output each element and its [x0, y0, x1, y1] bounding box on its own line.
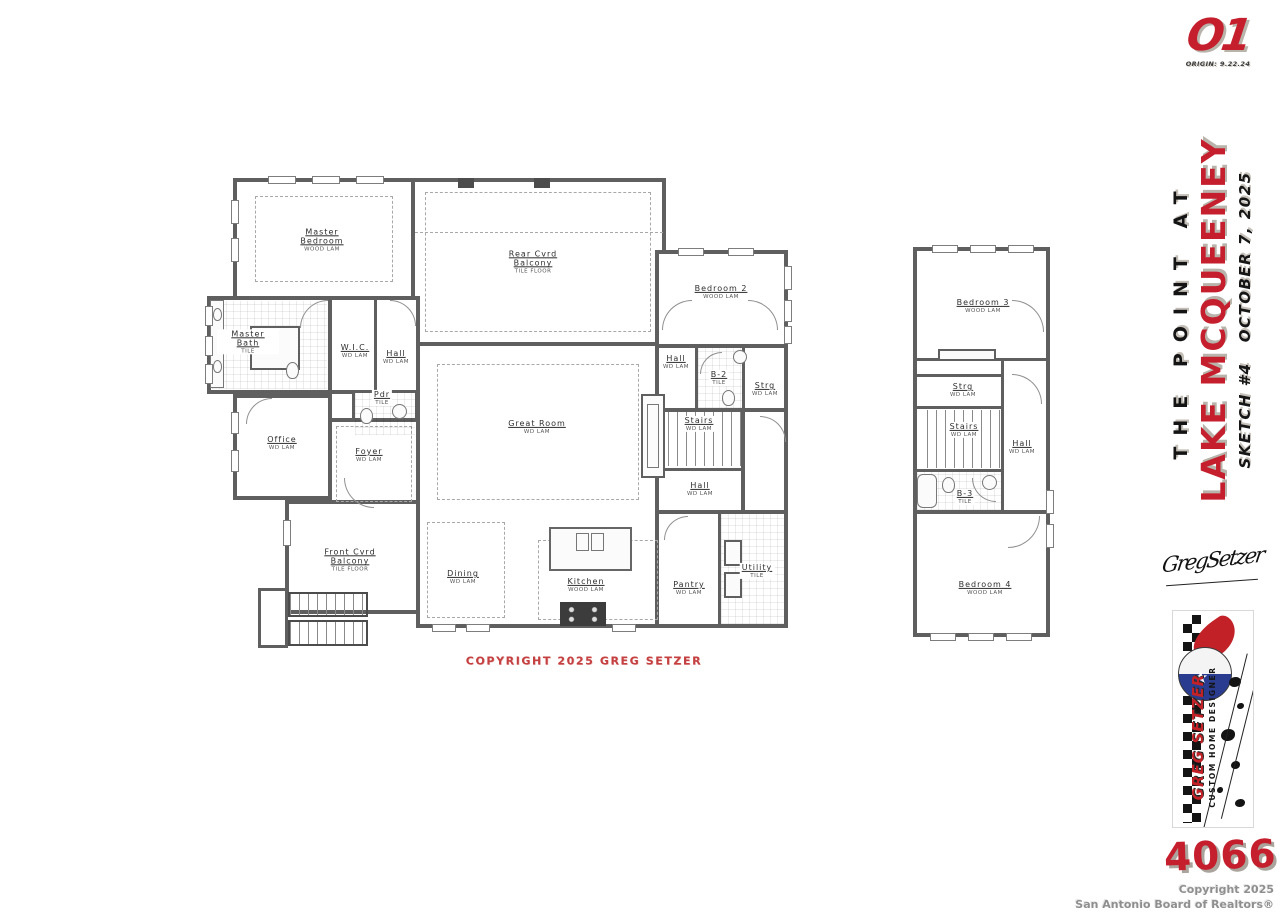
room-floor: WD LAM	[752, 391, 778, 397]
ink-splatter	[1235, 799, 1245, 807]
post	[458, 178, 474, 188]
window	[784, 266, 792, 290]
stairs2-treads	[927, 410, 1001, 468]
room-name: Pdr	[374, 390, 390, 399]
toilet	[722, 390, 735, 406]
room-name: Front Cvrd Balcony	[317, 547, 383, 565]
board-copyright-line2: San Antonio Board of Realtors®	[1075, 898, 1274, 912]
room-label-pantry: PantryWD LAM	[673, 580, 705, 596]
window	[1046, 490, 1054, 514]
room-name: Bedroom 4	[959, 580, 1012, 589]
exterior-stair-treads	[288, 620, 368, 646]
room-floor: TILE FLOOR	[515, 269, 552, 275]
room-floor: WD LAM	[383, 359, 409, 365]
room-floor: WD LAM	[951, 432, 977, 438]
designer-logo-badge: ★ GREG SETZER CUSTOM HOME DESIGNER	[1172, 610, 1254, 828]
exterior-stairs	[258, 588, 288, 648]
room-floor: WOOD LAM	[304, 247, 340, 253]
window	[784, 326, 792, 344]
room-name: Stairs	[950, 422, 979, 431]
window	[205, 306, 213, 326]
window	[466, 624, 490, 632]
island-sink	[591, 533, 604, 551]
board-copyright: Copyright 2025 San Antonio Board of Real…	[1075, 883, 1274, 912]
room-label-master-bath: Master BathTILE	[217, 329, 279, 354]
revision-logo: O1	[1176, 10, 1259, 61]
room-floor: WD LAM	[663, 364, 689, 370]
room-name: Rear Cvrd Balcony	[504, 249, 562, 267]
room-name: B-2	[711, 370, 727, 379]
room-floor: TILE	[750, 573, 764, 579]
room-floor: WD LAM	[686, 426, 712, 432]
window	[231, 450, 239, 472]
room-label-foyer: FoyerWD LAM	[355, 447, 382, 463]
board-copyright-line1: Copyright 2025	[1075, 883, 1274, 897]
toilet	[286, 362, 299, 379]
room-label-hall4: HallWD LAM	[1009, 439, 1035, 455]
room-label-office: OfficeWD LAM	[267, 435, 296, 451]
sink	[982, 475, 997, 490]
window	[930, 633, 956, 641]
room-label-stairs: StairsWD LAM	[683, 416, 716, 432]
tub	[917, 474, 937, 508]
window	[231, 238, 239, 262]
sink	[213, 360, 222, 373]
room-label-bedroom3: Bedroom 3WOOD LAM	[957, 298, 1010, 314]
window	[432, 624, 456, 632]
room-label-wic: W.I.C.WD LAM	[341, 343, 370, 359]
room-label-strg: StrgWD LAM	[752, 381, 778, 397]
room-label-great-room: Great RoomWD LAM	[508, 419, 566, 435]
room-floor: WOOD LAM	[568, 587, 604, 593]
room-floor: WOOD LAM	[965, 308, 1001, 314]
room-label-pdr: PdrTILE	[372, 390, 392, 406]
room-label-bedroom4: Bedroom 4WOOD LAM	[959, 580, 1012, 596]
room-name: Utility	[742, 563, 773, 572]
room-floor: WD LAM	[1009, 449, 1035, 455]
signature-flourish	[1166, 579, 1258, 586]
room-floor: WD LAM	[687, 491, 713, 497]
plan-number: 4066	[1163, 832, 1265, 880]
room-floor: TILE	[375, 400, 389, 406]
room-floor: WD LAM	[269, 445, 295, 451]
sink	[213, 308, 222, 321]
window	[784, 300, 792, 322]
room-label-bedroom2: Bedroom 2WOOD LAM	[695, 284, 748, 300]
room-name: Strg	[755, 381, 775, 390]
room-name: Bedroom 2	[695, 284, 748, 293]
room-label-master-bedroom: Master BedroomWOOD LAM	[293, 227, 351, 252]
room-label-b3: B-3TILE	[955, 489, 975, 505]
sketch-date-line: SKETCH #4 OCTOBER 7, 2025	[1236, 171, 1254, 468]
room-name: Dining	[447, 569, 479, 578]
window	[968, 633, 994, 641]
room-label-dining: DiningWD LAM	[447, 569, 479, 585]
room-label-b2: B-2TILE	[709, 370, 729, 386]
room-floor: TILE FLOOR	[332, 567, 369, 573]
window	[231, 412, 239, 434]
room-name: B-3	[957, 489, 973, 498]
divider	[917, 374, 1003, 377]
room-label-stairs2: StairsWD LAM	[948, 422, 981, 438]
room-name: Office	[267, 435, 296, 444]
room-floor: WD LAM	[450, 579, 476, 585]
room-floor: WD LAM	[524, 429, 550, 435]
room-label-rear-balcony: Rear Cvrd BalconyTILE FLOOR	[504, 249, 562, 274]
window	[932, 245, 958, 253]
toilet	[942, 477, 955, 493]
room-name: Bedroom 3	[957, 298, 1010, 307]
room-floor: WD LAM	[676, 590, 702, 596]
window	[678, 248, 704, 256]
wic-hall-divider	[374, 300, 377, 390]
room-name: Hall	[386, 349, 405, 358]
room-floor: WOOD LAM	[967, 590, 1003, 596]
origin-date: ORIGIN: 9.22.24	[1172, 60, 1264, 68]
project-title-line: THE POINT AT	[1170, 180, 1192, 459]
sink	[392, 404, 407, 419]
window	[231, 200, 239, 224]
room-name: Foyer	[355, 447, 382, 456]
room-label-hall3: HallWD LAM	[687, 481, 713, 497]
room-floor: TILE	[712, 380, 726, 386]
window	[970, 245, 996, 253]
closet	[938, 349, 996, 361]
room-name: Hall	[666, 354, 685, 363]
divider	[917, 510, 1046, 514]
room-floor: WOOD LAM	[703, 294, 739, 300]
plan-copyright: COPYRIGHT 2025 GREG SETZER	[466, 655, 702, 668]
window	[728, 248, 754, 256]
room-label-hall2: HallWD LAM	[663, 354, 689, 370]
designer-signature: GregSetzer	[1161, 543, 1264, 578]
toilet	[360, 408, 373, 424]
room-name: Hall	[1012, 439, 1031, 448]
ink-splatter	[1237, 703, 1244, 709]
divider	[659, 468, 741, 471]
room-name: Pantry	[673, 580, 705, 589]
fireplace-insert	[647, 404, 659, 468]
room-floor: WD LAM	[342, 353, 368, 359]
room-floor: TILE	[241, 349, 255, 355]
room-label-strg2: StrgWD LAM	[950, 382, 976, 398]
room-name: Master Bedroom	[293, 227, 351, 245]
range	[560, 602, 606, 626]
island-sink	[576, 533, 589, 551]
window	[268, 176, 296, 184]
window	[283, 520, 291, 546]
room-floor: WD LAM	[950, 392, 976, 398]
title-block: THE POINT AT LAKE MCQUEENEY SKETCH #4 OC…	[1164, 105, 1260, 535]
rear-balcony-line	[415, 232, 663, 233]
room-name: W.I.C.	[341, 343, 370, 352]
window	[205, 364, 213, 384]
room-floor: TILE	[958, 499, 972, 505]
divider	[917, 406, 1003, 409]
room-name: Great Room	[508, 419, 566, 428]
room-label-hall: HallWD LAM	[383, 349, 409, 365]
badge-tagline: CUSTOM HOME DESIGNER	[1208, 666, 1217, 807]
window	[612, 624, 636, 632]
sink	[733, 350, 747, 364]
room-name: Strg	[953, 382, 973, 391]
room-name: Kitchen	[567, 577, 604, 586]
window	[312, 176, 340, 184]
room-floor: WD LAM	[356, 457, 382, 463]
location-title-line: LAKE MCQUEENEY	[1194, 137, 1233, 502]
window	[205, 336, 213, 356]
room-name: Stairs	[685, 416, 714, 425]
plan-sheet: Master BedroomWOOD LAM Rear Cvrd Balcony…	[0, 0, 1280, 914]
window	[1046, 524, 1054, 548]
window	[1006, 633, 1032, 641]
room-name: Hall	[690, 481, 709, 490]
window	[356, 176, 384, 184]
divider	[1001, 361, 1004, 511]
post	[534, 178, 550, 188]
exterior-stair-treads	[288, 592, 368, 617]
window	[1008, 245, 1034, 253]
room-label-kitchen: KitchenWOOD LAM	[567, 577, 604, 593]
badge-designer-name: GREG SETZER	[1189, 674, 1207, 801]
room-label-front-balcony: Front Cvrd BalconyTILE FLOOR	[317, 547, 383, 572]
room-label-utility: UtilityTILE	[740, 563, 775, 579]
badge-text: GREG SETZER CUSTOM HOME DESIGNER	[1181, 649, 1225, 825]
room-name: Master Bath	[219, 329, 277, 347]
